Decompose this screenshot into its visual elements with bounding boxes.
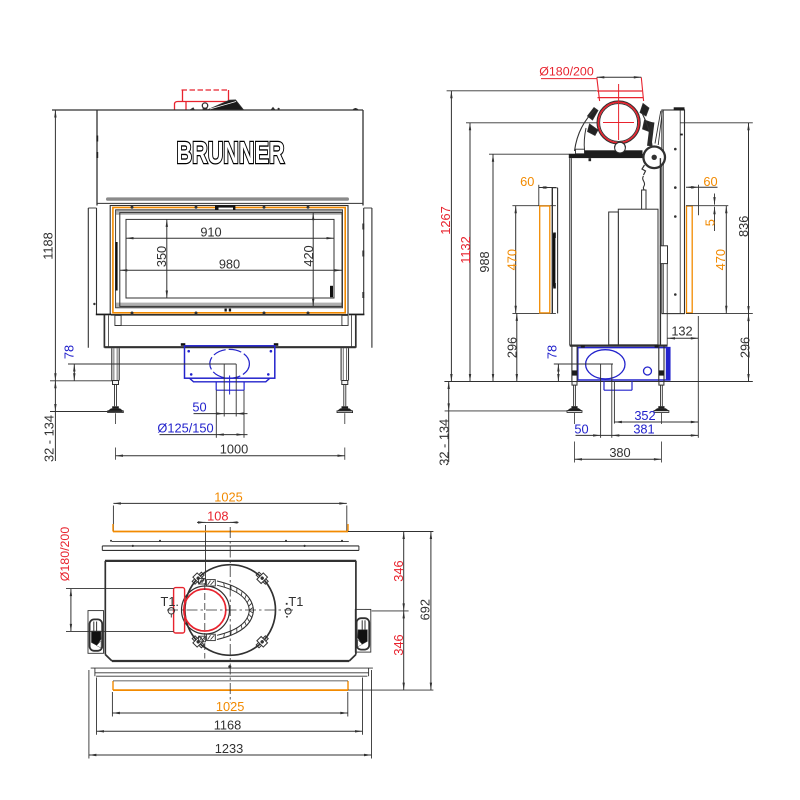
- svg-text:350: 350: [154, 246, 169, 267]
- svg-text:1233: 1233: [215, 741, 243, 756]
- svg-text:Ø125/150: Ø125/150: [157, 420, 213, 435]
- svg-text:32 - 134: 32 - 134: [42, 415, 57, 462]
- svg-text:296: 296: [737, 337, 752, 358]
- svg-text:692: 692: [417, 599, 432, 620]
- svg-text:Ø180/200: Ø180/200: [58, 527, 72, 582]
- svg-text:60: 60: [520, 174, 534, 189]
- svg-text:420: 420: [301, 245, 316, 266]
- svg-text:1025: 1025: [216, 699, 244, 714]
- svg-text:980: 980: [219, 257, 240, 272]
- svg-text:50: 50: [574, 421, 588, 436]
- svg-text:380: 380: [609, 445, 630, 460]
- svg-text:836: 836: [736, 216, 751, 237]
- svg-text:910: 910: [200, 224, 221, 239]
- svg-text:78: 78: [544, 345, 559, 359]
- svg-text:470: 470: [713, 249, 728, 270]
- svg-text:988: 988: [477, 251, 492, 272]
- svg-text:1025: 1025: [214, 489, 242, 504]
- svg-text:78: 78: [62, 345, 77, 359]
- svg-text:470: 470: [505, 249, 520, 270]
- svg-text:BRUNNER: BRUNNER: [177, 135, 285, 170]
- svg-text:T1: T1: [288, 594, 303, 609]
- svg-text:50: 50: [192, 400, 206, 415]
- svg-text:1168: 1168: [214, 717, 242, 732]
- svg-text:381: 381: [633, 421, 654, 436]
- svg-text:1000: 1000: [220, 441, 248, 456]
- svg-text:296: 296: [504, 337, 519, 358]
- svg-text:1188: 1188: [41, 232, 56, 260]
- svg-text:32 - 134: 32 - 134: [437, 419, 452, 466]
- svg-text:T1.: T1.: [161, 594, 180, 609]
- svg-text:108: 108: [207, 508, 228, 523]
- svg-text:Ø180/200: Ø180/200: [539, 65, 594, 79]
- svg-text:346: 346: [391, 634, 406, 655]
- svg-text:60: 60: [703, 174, 717, 189]
- svg-text:5: 5: [703, 219, 718, 226]
- svg-text:1132: 1132: [458, 236, 473, 264]
- svg-text:346: 346: [391, 560, 406, 581]
- svg-text:1267: 1267: [438, 206, 453, 234]
- svg-text:132: 132: [671, 323, 692, 338]
